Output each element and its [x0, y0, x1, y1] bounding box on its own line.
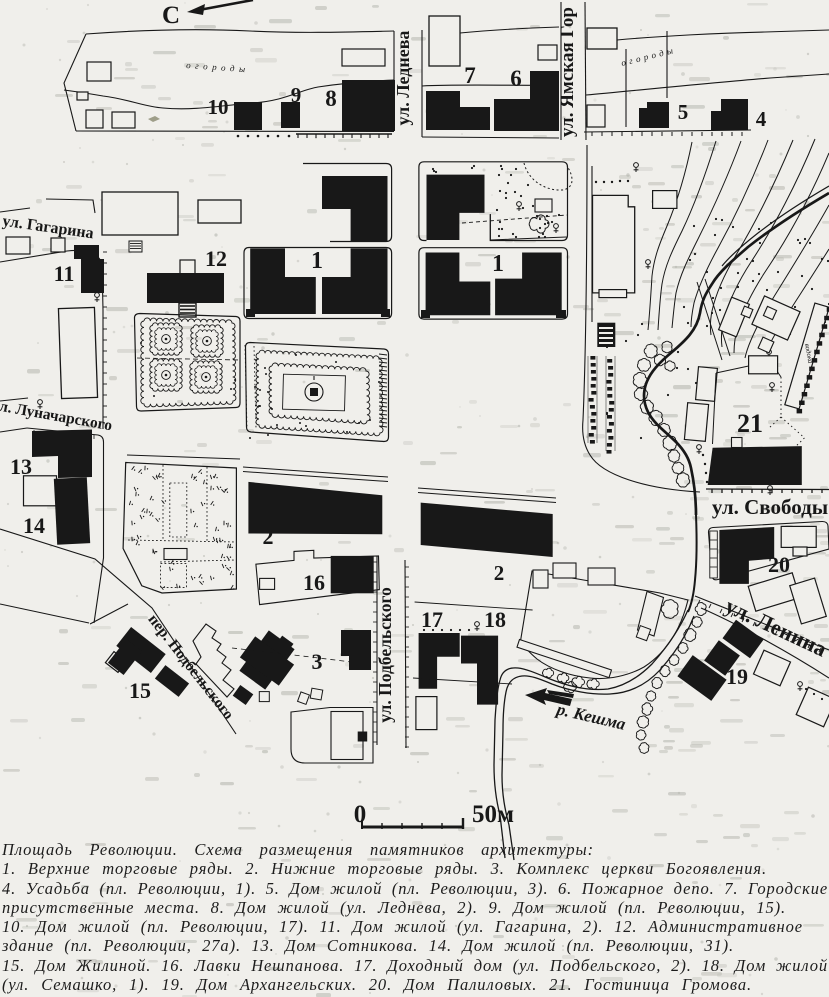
- svg-text:ул. Леднева: ул. Леднева: [393, 31, 413, 126]
- svg-text:12: 12: [205, 246, 227, 271]
- svg-text:6: 6: [510, 66, 522, 91]
- svg-text:5: 5: [678, 100, 689, 124]
- svg-text:8: 8: [325, 86, 337, 111]
- svg-text:18: 18: [484, 607, 506, 632]
- svg-text:9: 9: [291, 83, 302, 107]
- svg-text:ул. Луначарского: ул. Луначарского: [0, 397, 114, 435]
- svg-text:огороды: огороды: [620, 45, 677, 68]
- svg-text:14: 14: [23, 513, 45, 538]
- svg-text:50м: 50м: [472, 801, 514, 828]
- svg-text:11: 11: [54, 261, 75, 286]
- svg-text:21: 21: [737, 409, 763, 438]
- svg-text:1: 1: [311, 248, 323, 274]
- svg-text:16: 16: [303, 570, 325, 595]
- svg-text:7: 7: [464, 63, 476, 88]
- svg-text:15: 15: [129, 678, 151, 703]
- svg-text:4: 4: [756, 107, 767, 131]
- svg-text:ул. Ямская Гор: ул. Ямская Гор: [557, 7, 578, 137]
- svg-text:1: 1: [492, 251, 504, 277]
- svg-text:19: 19: [726, 664, 748, 689]
- svg-text:огороды: огороды: [186, 60, 250, 74]
- svg-text:3: 3: [312, 649, 323, 674]
- svg-text:С: С: [162, 2, 180, 29]
- svg-text:ул. Свободы: ул. Свободы: [712, 495, 828, 519]
- svg-text:17: 17: [421, 607, 443, 632]
- svg-text:0: 0: [354, 801, 367, 828]
- svg-text:2: 2: [494, 561, 505, 585]
- svg-text:р. Кешма: р. Кешма: [553, 699, 628, 734]
- svg-text:10: 10: [208, 95, 229, 119]
- svg-text:ул. Подбельского: ул. Подбельского: [375, 587, 395, 723]
- svg-text:20: 20: [768, 552, 790, 577]
- svg-text:2: 2: [263, 524, 274, 549]
